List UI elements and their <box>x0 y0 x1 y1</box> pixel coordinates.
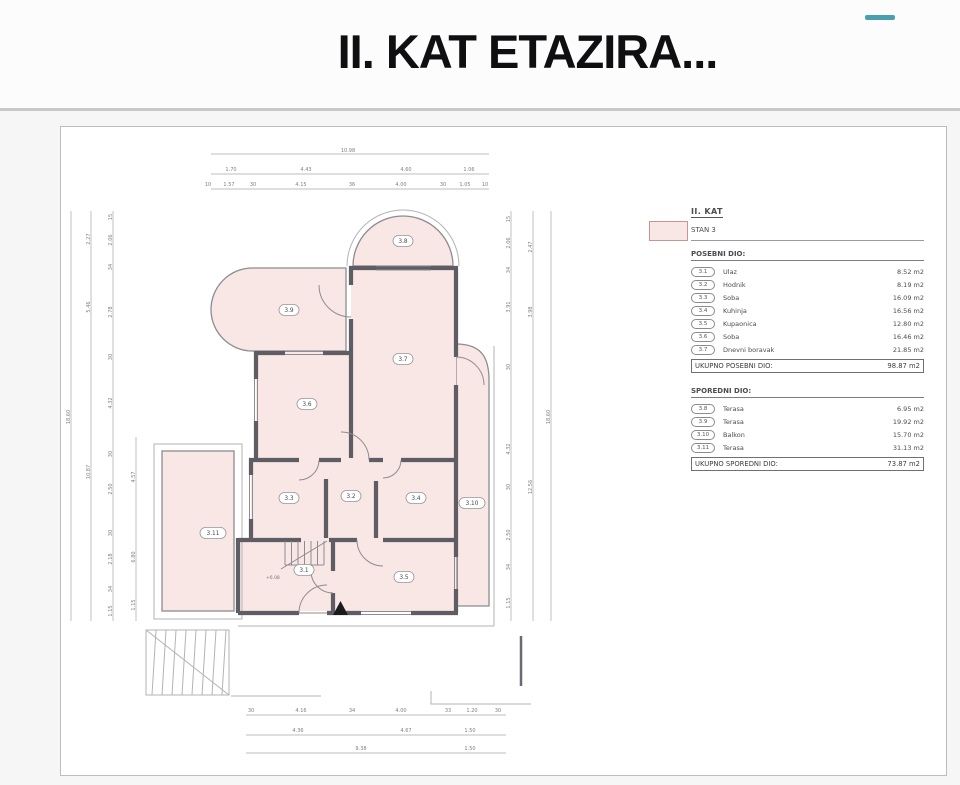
room-name: Soba <box>723 294 893 302</box>
dim-label: 4.57 <box>131 471 137 482</box>
dim-label: 12.56 <box>528 480 534 494</box>
room-badge: 3.4 <box>691 306 715 316</box>
room-badge: 3.7 <box>691 345 715 355</box>
room-label: 3.8 <box>398 239 408 245</box>
dim-label: 30 <box>440 182 446 188</box>
room-area: 8.19 m2 <box>897 281 924 289</box>
section-heading-sporedni: SPOREDNI DIO: <box>691 387 924 398</box>
legend-rows-sporedni: 3.8Terasa6.95 m23.9Terasa19.92 m23.10Bal… <box>691 402 924 454</box>
room-name: Dnevni boravak <box>723 346 893 354</box>
room-name: Kuhinja <box>723 307 893 315</box>
dim-label: 1.15 <box>131 599 137 610</box>
room-name: Terasa <box>723 444 893 452</box>
dim-label: 30 <box>506 484 512 490</box>
legend-row: 3.7Dnevni boravak21.85 m2 <box>691 343 924 356</box>
legend-row: 3.6Soba16.46 m2 <box>691 330 924 343</box>
dim-label: 6.80 <box>131 551 137 562</box>
dim-label: 2.27 <box>86 233 92 244</box>
section-heading-posebni: POSEBNI DIO: <box>691 250 924 261</box>
dim-label: 30 <box>506 364 512 370</box>
room-label: 3.5 <box>399 575 409 581</box>
dim-label: 30 <box>108 354 114 360</box>
total-row-posebni: UKUPNO POSEBNI DIO: 98.87 m2 <box>691 359 924 373</box>
room-label: 3.2 <box>346 494 356 500</box>
legend-floor-label: II. KAT <box>691 207 723 218</box>
dim-label: 1.20 <box>466 708 477 714</box>
dim-label: 4.15 <box>295 182 306 188</box>
title-banner: II. KAT ETAZIRA... <box>0 0 960 111</box>
dim-label: 2.47 <box>528 241 534 252</box>
dim-label: 1.05 <box>459 182 470 188</box>
dim-label: 4.32 <box>108 397 114 408</box>
room-area: 8.52 m2 <box>897 268 924 276</box>
legend-unit-label: STAN 3 <box>691 226 716 234</box>
dim-label: 34 <box>349 708 355 714</box>
dim-label: 10 <box>482 182 488 188</box>
dim-label: 2.06 <box>108 234 114 245</box>
room-name: Balkon <box>723 431 893 439</box>
dim-label: 9.38 <box>355 746 366 752</box>
room-badge: 3.3 <box>691 293 715 303</box>
dim-label: 2.18 <box>108 553 114 564</box>
legend-row: 3.10Balkon15.70 m2 <box>691 428 924 441</box>
legend-row: 3.4Kuhinja16.56 m2 <box>691 304 924 317</box>
dim-label: 10.98 <box>341 148 355 154</box>
legend-row: 3.2Hodnik8.19 m2 <box>691 278 924 291</box>
room-badge: 3.8 <box>691 404 715 414</box>
room-area: 16.46 m2 <box>893 333 924 341</box>
dim-label: 30 <box>248 708 254 714</box>
dim-label: 4.36 <box>292 728 303 734</box>
room-label: 3.11 <box>207 531 220 537</box>
room-name: Hodnik <box>723 281 897 289</box>
legend-row: 3.9Terasa19.92 m2 <box>691 415 924 428</box>
room-terrace-3-9 <box>211 268 346 351</box>
room-badge: 3.5 <box>691 319 715 329</box>
room-label: 3.4 <box>411 496 421 502</box>
room-name: Ulaz <box>723 268 897 276</box>
dim-label: 34 <box>108 586 114 592</box>
room-name: Kupaonica <box>723 320 893 328</box>
room-label: 3.10 <box>466 501 479 507</box>
room-badge: 3.6 <box>691 332 715 342</box>
dim-label: 2.06 <box>506 237 512 248</box>
room-label: 3.6 <box>302 402 312 408</box>
exterior-staircase <box>146 630 229 695</box>
dim-label: 15 <box>108 214 114 220</box>
dim-label: 2.50 <box>108 483 114 494</box>
room-area: 16.09 m2 <box>893 294 924 302</box>
dim-label: 1.15 <box>108 605 114 616</box>
dim-label: 4.67 <box>400 728 411 734</box>
dim-label: 33 <box>445 708 451 714</box>
room-name: Soba <box>723 333 893 341</box>
room-badge: 3.11 <box>691 443 715 453</box>
dim-label: 2.50 <box>506 529 512 540</box>
dim-label: 1.50 <box>464 728 475 734</box>
room-name: Terasa <box>723 418 893 426</box>
dim-label: 30 <box>108 451 114 457</box>
dim-label: 15 <box>506 216 512 222</box>
dim-label: 1.50 <box>464 746 475 752</box>
dim-label: 4.60 <box>400 167 411 173</box>
dim-label: 10.87 <box>86 465 92 479</box>
dim-label: 30 <box>108 530 114 536</box>
legend-row: 3.8Terasa6.95 m2 <box>691 402 924 415</box>
dim-label: 34 <box>108 264 114 270</box>
total-value: 98.87 m2 <box>887 362 920 370</box>
dim-label: 3.98 <box>528 306 534 317</box>
dim-label: 2.78 <box>108 306 114 317</box>
dim-label: 36 <box>349 182 355 188</box>
legend-row: 3.3Soba16.09 m2 <box>691 291 924 304</box>
dim-label: 30 <box>495 708 501 714</box>
total-label: UKUPNO SPOREDNI DIO: <box>695 460 778 468</box>
room-area: 19.92 m2 <box>893 418 924 426</box>
room-area: 31.13 m2 <box>893 444 924 452</box>
room-badge: 3.1 <box>691 267 715 277</box>
dim-label: 1.57 <box>223 182 234 188</box>
dim-label: 18.60 <box>66 410 72 424</box>
room-badge: 3.2 <box>691 280 715 290</box>
dim-label: 1.15 <box>506 597 512 608</box>
accent-dash <box>865 15 895 20</box>
room-label: 3.7 <box>398 357 408 363</box>
legend: II. KAT STAN 3 POSEBNI DIO: 3.1Ulaz8.52 … <box>646 199 924 471</box>
site-step-line <box>431 691 531 704</box>
room-label: 3.3 <box>284 496 294 502</box>
room-area: 15.70 m2 <box>893 431 924 439</box>
dim-label: 10 <box>205 182 211 188</box>
level-note: +6.08 <box>266 575 280 581</box>
dim-label: 5.46 <box>86 301 92 312</box>
dim-label: 4.00 <box>395 708 406 714</box>
dim-label: 1.70 <box>225 167 236 173</box>
legend-row: 3.11Terasa31.13 m2 <box>691 441 924 454</box>
dim-label: 34 <box>506 267 512 273</box>
dim-label: 30 <box>250 182 256 188</box>
room-label: 3.1 <box>299 568 309 574</box>
dim-label: 4.00 <box>395 182 406 188</box>
dim-label: 18.60 <box>546 410 552 424</box>
room-area: 6.95 m2 <box>897 405 924 413</box>
room-area: 21.85 m2 <box>893 346 924 354</box>
rooms-bottom-band <box>238 538 456 611</box>
legend-row: 3.5Kupaonica12.80 m2 <box>691 317 924 330</box>
total-row-sporedni: UKUPNO SPOREDNI DIO: 73.87 m2 <box>691 457 924 471</box>
room-area: 12.80 m2 <box>893 320 924 328</box>
room-label: 3.9 <box>284 308 294 314</box>
page-title: II. KAT ETAZIRA... <box>0 0 960 79</box>
room-badge: 3.9 <box>691 417 715 427</box>
dim-label: 4.16 <box>295 708 306 714</box>
total-value: 73.87 m2 <box>887 460 920 468</box>
dim-label: 34 <box>506 564 512 570</box>
total-label: UKUPNO POSEBNI DIO: <box>695 362 773 370</box>
dim-label: 3.91 <box>506 301 512 312</box>
room-name: Terasa <box>723 405 897 413</box>
dim-label: 4.43 <box>300 167 311 173</box>
page: II. KAT ETAZIRA... <box>0 0 960 785</box>
legend-unit-row: STAN 3 <box>691 220 924 241</box>
dim-label: 4.32 <box>506 443 512 454</box>
drawing-sheet: +6.08 10.981.704.434.601.06101.57304.153… <box>60 126 947 776</box>
room-badge: 3.10 <box>691 430 715 440</box>
legend-rows-posebni: 3.1Ulaz8.52 m23.2Hodnik8.19 m23.3Soba16.… <box>691 265 924 356</box>
legend-row: 3.1Ulaz8.52 m2 <box>691 265 924 278</box>
room-area: 16.56 m2 <box>893 307 924 315</box>
dim-label: 1.06 <box>463 167 474 173</box>
legend-unit-swatch <box>649 221 688 241</box>
